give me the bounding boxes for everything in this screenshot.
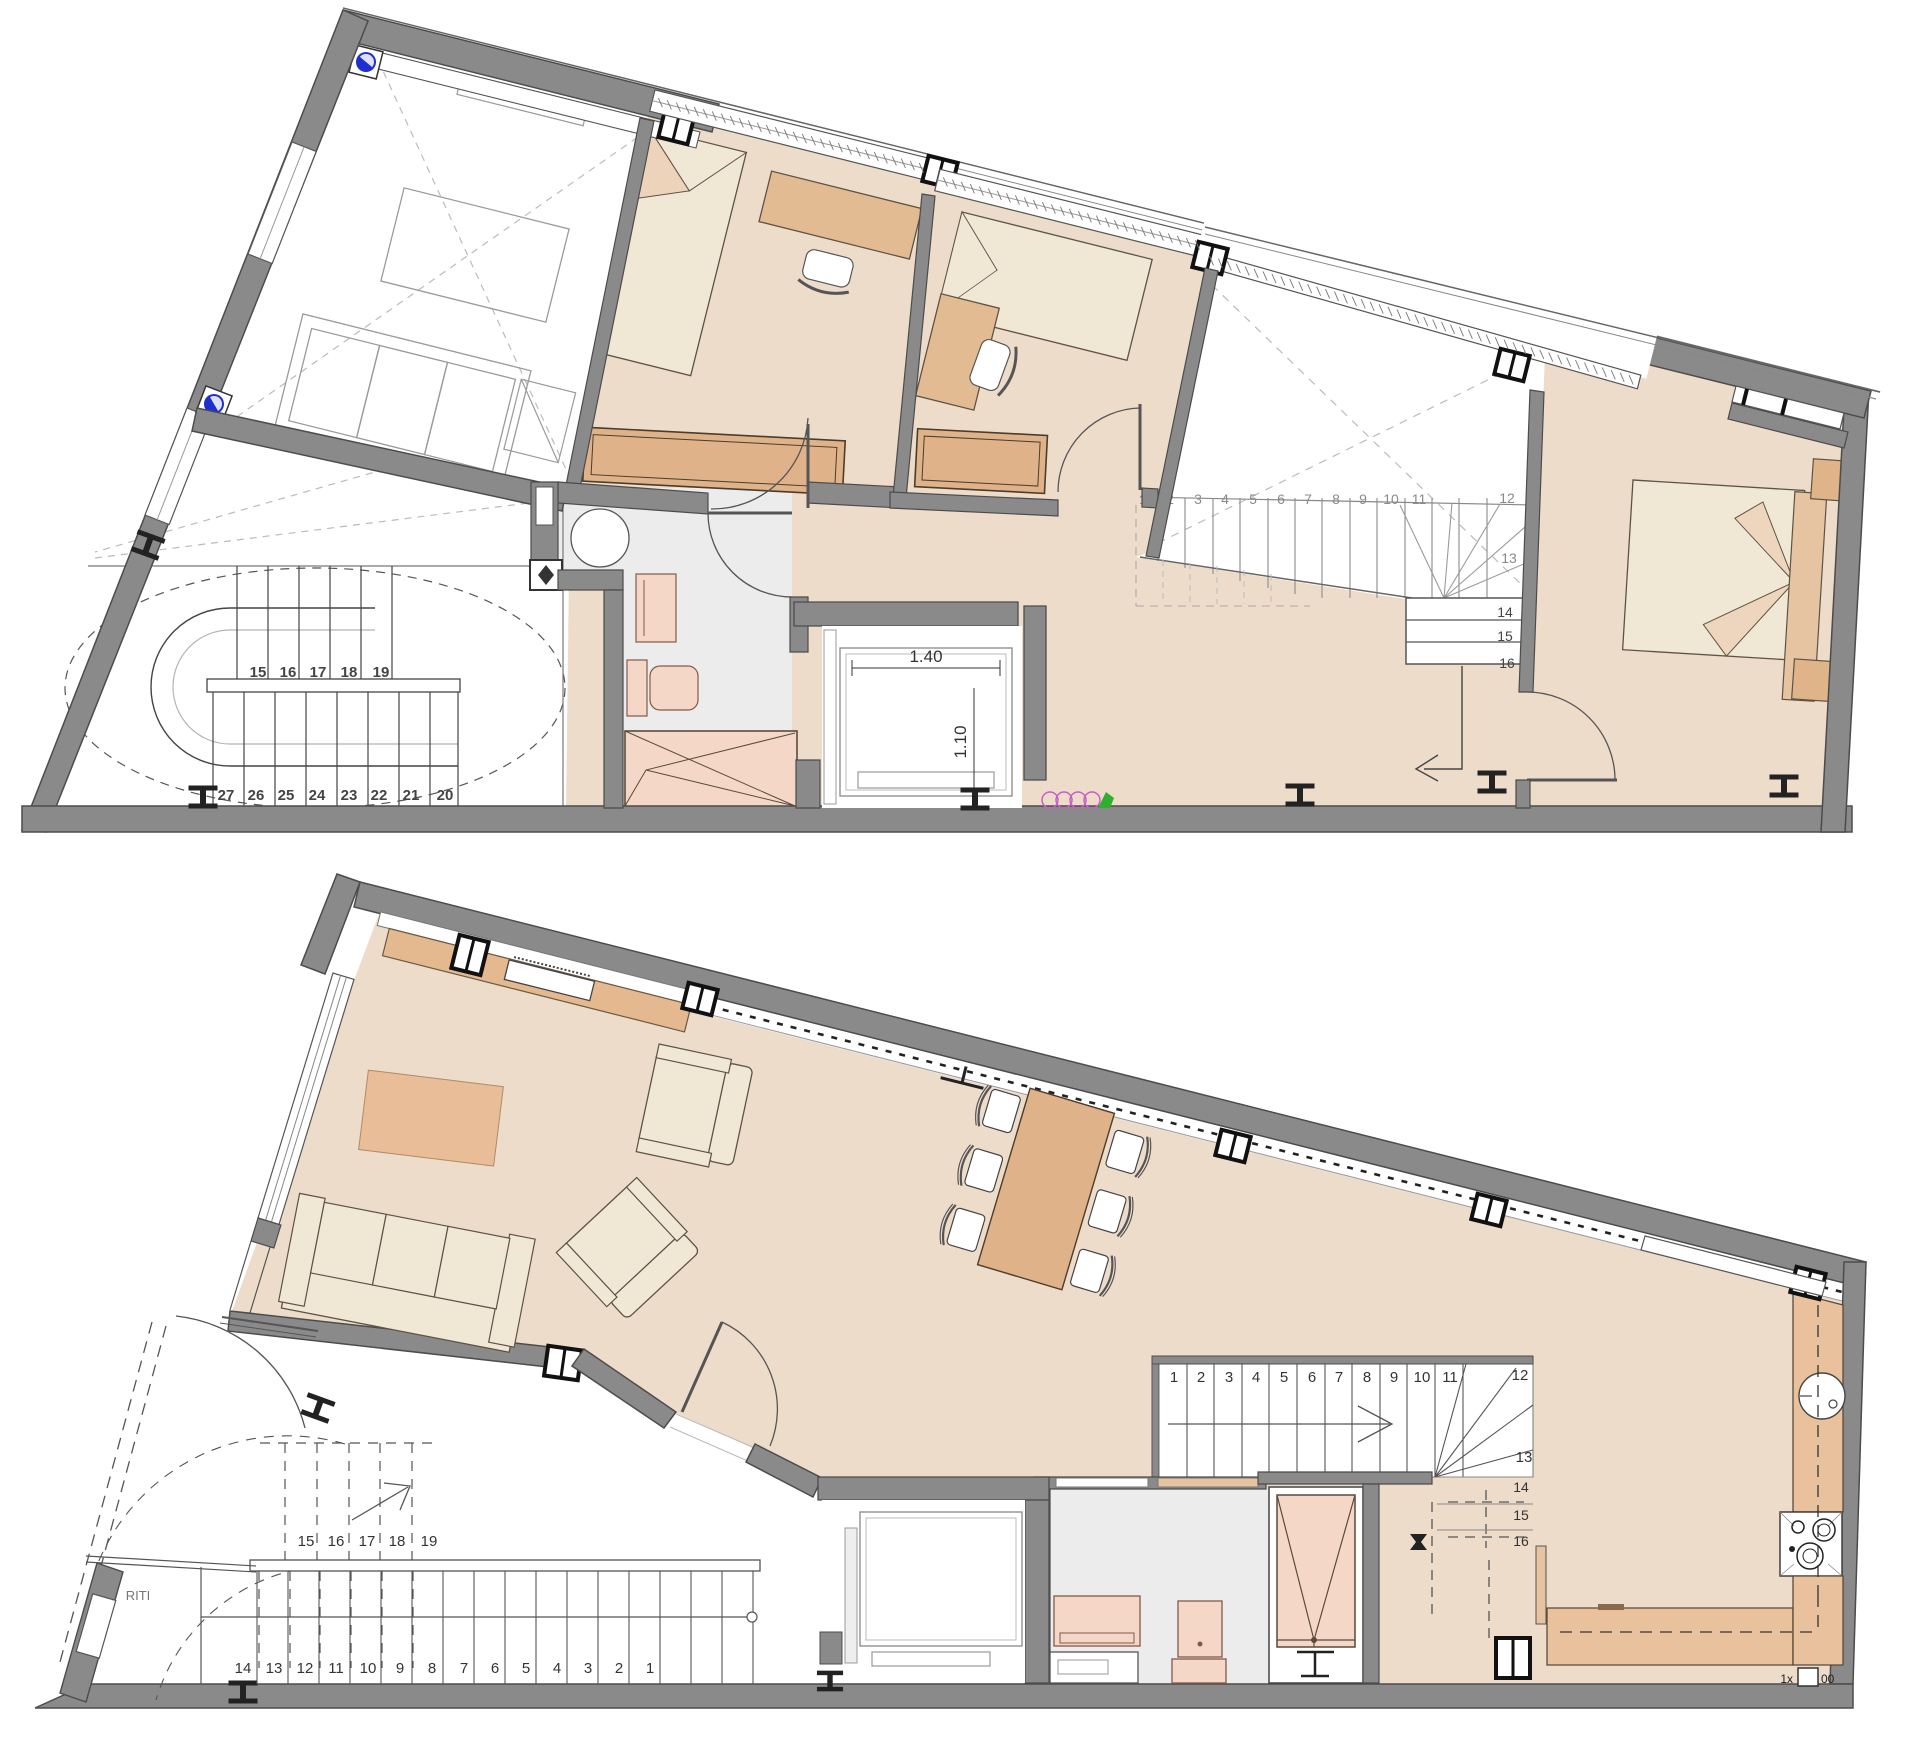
svg-text:11: 11 [1442,1369,1458,1386]
svg-text:27: 27 [218,787,235,804]
svg-text:1: 1 [1170,1369,1178,1386]
svg-text:3: 3 [584,1660,592,1677]
svg-text:9: 9 [396,1660,404,1677]
svg-text:7: 7 [460,1660,468,1677]
svg-text:4: 4 [1221,491,1229,507]
svg-text:1x: 1x [1780,1672,1793,1686]
svg-text:19: 19 [421,1533,438,1550]
svg-text:8: 8 [1332,491,1340,507]
svg-text:6: 6 [1277,491,1285,507]
svg-text:16: 16 [1513,1533,1529,1549]
svg-text:14: 14 [1513,1479,1529,1495]
svg-text:13: 13 [1516,1449,1533,1466]
svg-text:12: 12 [297,1660,314,1677]
svg-text:5: 5 [1249,491,1257,507]
svg-text:13: 13 [1501,550,1517,566]
svg-text:18: 18 [389,1533,406,1550]
svg-text:12: 12 [1499,490,1515,506]
svg-text:11: 11 [328,1660,344,1677]
svg-text:14: 14 [235,1660,252,1677]
svg-text:9: 9 [1390,1369,1398,1386]
svg-text:19: 19 [373,664,390,681]
svg-text:1: 1 [646,1660,654,1677]
svg-text:5: 5 [1280,1369,1288,1386]
svg-text:15: 15 [1497,628,1513,644]
svg-text:16: 16 [1499,655,1515,671]
svg-text:14: 14 [1497,604,1513,620]
svg-text:1.40: 1.40 [909,647,942,666]
svg-text:10: 10 [1414,1369,1431,1386]
svg-text:18: 18 [341,664,358,681]
svg-text:25: 25 [278,787,295,804]
svg-text:6: 6 [491,1660,499,1677]
svg-text:15: 15 [1513,1507,1529,1523]
svg-text:13: 13 [266,1660,283,1677]
svg-text:8: 8 [1363,1369,1371,1386]
svg-text:7: 7 [1335,1369,1343,1386]
svg-text:6: 6 [1308,1369,1316,1386]
svg-text:9: 9 [1359,491,1367,507]
svg-text:21: 21 [403,787,420,804]
svg-text:00: 00 [1821,1672,1835,1686]
svg-text:11: 11 [1412,491,1427,507]
svg-text:2: 2 [615,1660,623,1677]
svg-text:3: 3 [1194,491,1202,507]
svg-text:10: 10 [1383,491,1399,507]
svg-text:2: 2 [1197,1369,1205,1386]
svg-text:22: 22 [371,787,388,804]
svg-text:RITI: RITI [126,1588,151,1603]
svg-text:8: 8 [428,1660,436,1677]
svg-text:20: 20 [437,787,454,804]
svg-text:17: 17 [359,1533,376,1550]
svg-text:15: 15 [298,1533,315,1550]
svg-text:5: 5 [522,1660,530,1677]
svg-text:24: 24 [309,787,326,804]
svg-text:12: 12 [1512,1367,1529,1384]
svg-text:10: 10 [360,1660,377,1677]
svg-text:16: 16 [280,664,297,681]
svg-text:23: 23 [341,787,358,804]
svg-text:4: 4 [553,1660,561,1677]
svg-text:15: 15 [250,664,267,681]
svg-text:4: 4 [1252,1369,1260,1386]
svg-text:1.10: 1.10 [951,725,970,758]
svg-text:17: 17 [310,664,327,681]
svg-text:7: 7 [1304,491,1312,507]
svg-text:16: 16 [328,1533,345,1550]
svg-text:26: 26 [248,787,265,804]
svg-text:3: 3 [1225,1369,1233,1386]
